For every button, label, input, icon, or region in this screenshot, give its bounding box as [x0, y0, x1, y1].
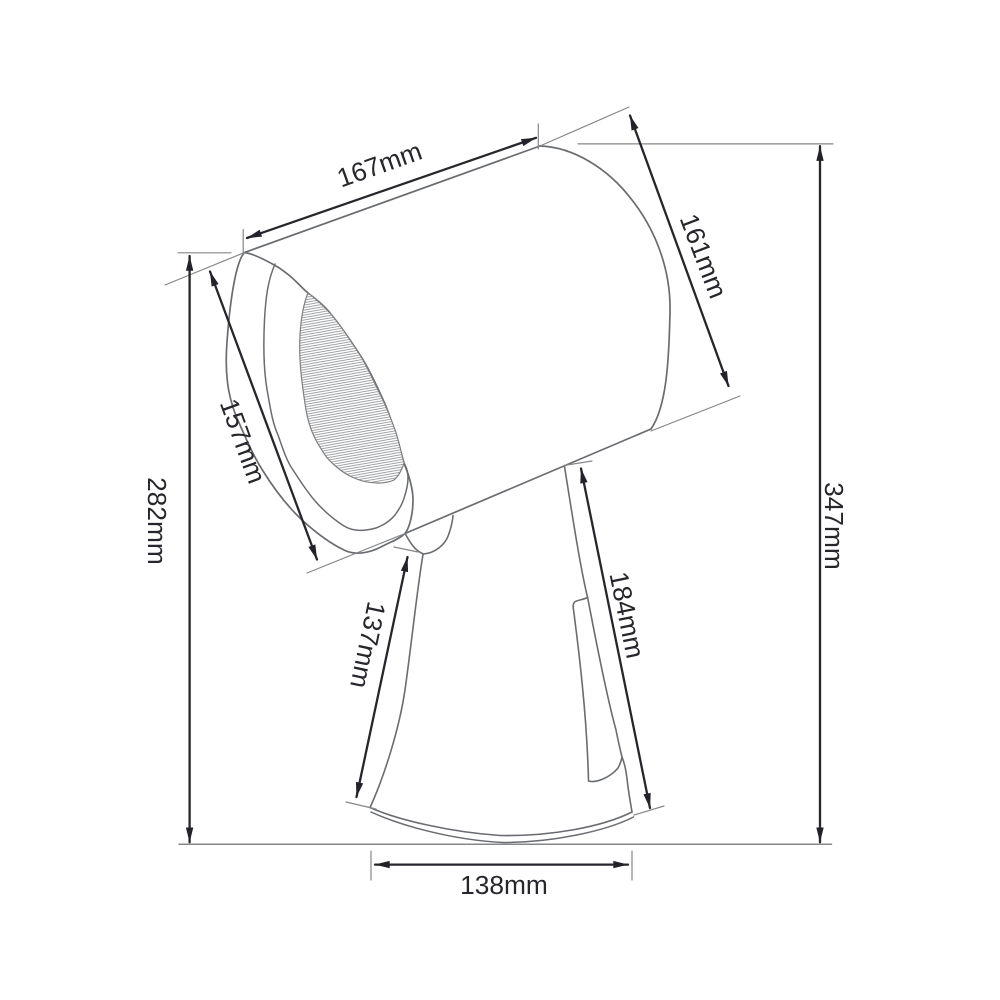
svg-text:157mm: 157mm [214, 395, 272, 488]
svg-text:137mm: 137mm [344, 599, 392, 691]
svg-text:167mm: 167mm [333, 136, 426, 194]
svg-text:282mm: 282mm [142, 477, 172, 565]
svg-text:161mm: 161mm [674, 210, 733, 303]
svg-text:138mm: 138mm [460, 870, 548, 900]
svg-text:347mm: 347mm [819, 482, 849, 570]
